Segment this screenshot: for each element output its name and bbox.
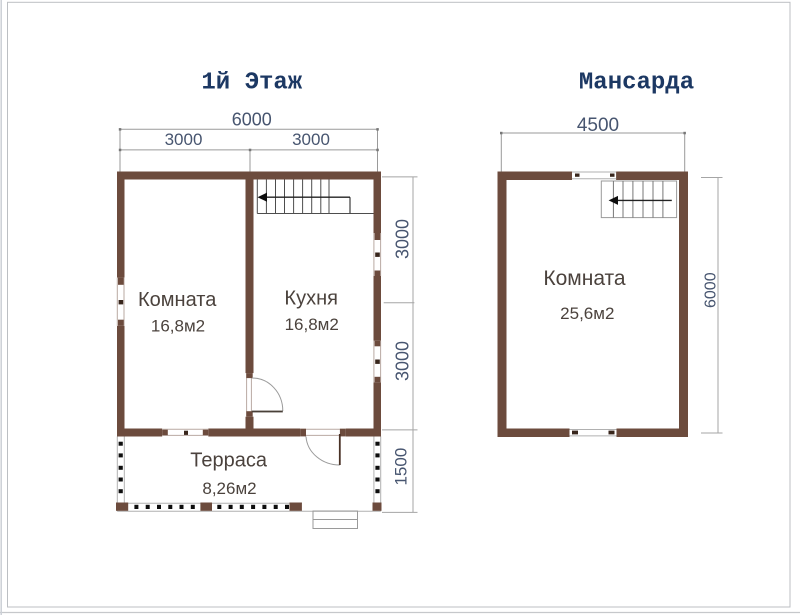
svg-text:1500: 1500 [392,448,411,486]
svg-text:1й Этаж: 1й Этаж [201,70,302,97]
svg-text:Комната: Комната [543,267,626,290]
svg-text:Комната: Комната [138,289,217,311]
svg-text:3000: 3000 [393,341,413,381]
svg-text:4500: 4500 [577,115,619,136]
svg-text:8,26м2: 8,26м2 [202,479,256,498]
svg-text:Мансарда: Мансарда [579,70,694,97]
svg-text:16,8м2: 16,8м2 [285,315,339,334]
svg-text:Терраса: Терраса [190,450,268,472]
svg-text:16,8м2: 16,8м2 [151,316,205,335]
svg-text:6000: 6000 [703,272,720,308]
svg-text:Кухня: Кухня [284,288,338,310]
svg-text:3000: 3000 [292,130,330,149]
svg-text:3000: 3000 [393,219,413,259]
svg-text:6000: 6000 [232,109,272,129]
svg-text:3000: 3000 [165,130,203,149]
svg-text:25,6м2: 25,6м2 [560,304,614,323]
